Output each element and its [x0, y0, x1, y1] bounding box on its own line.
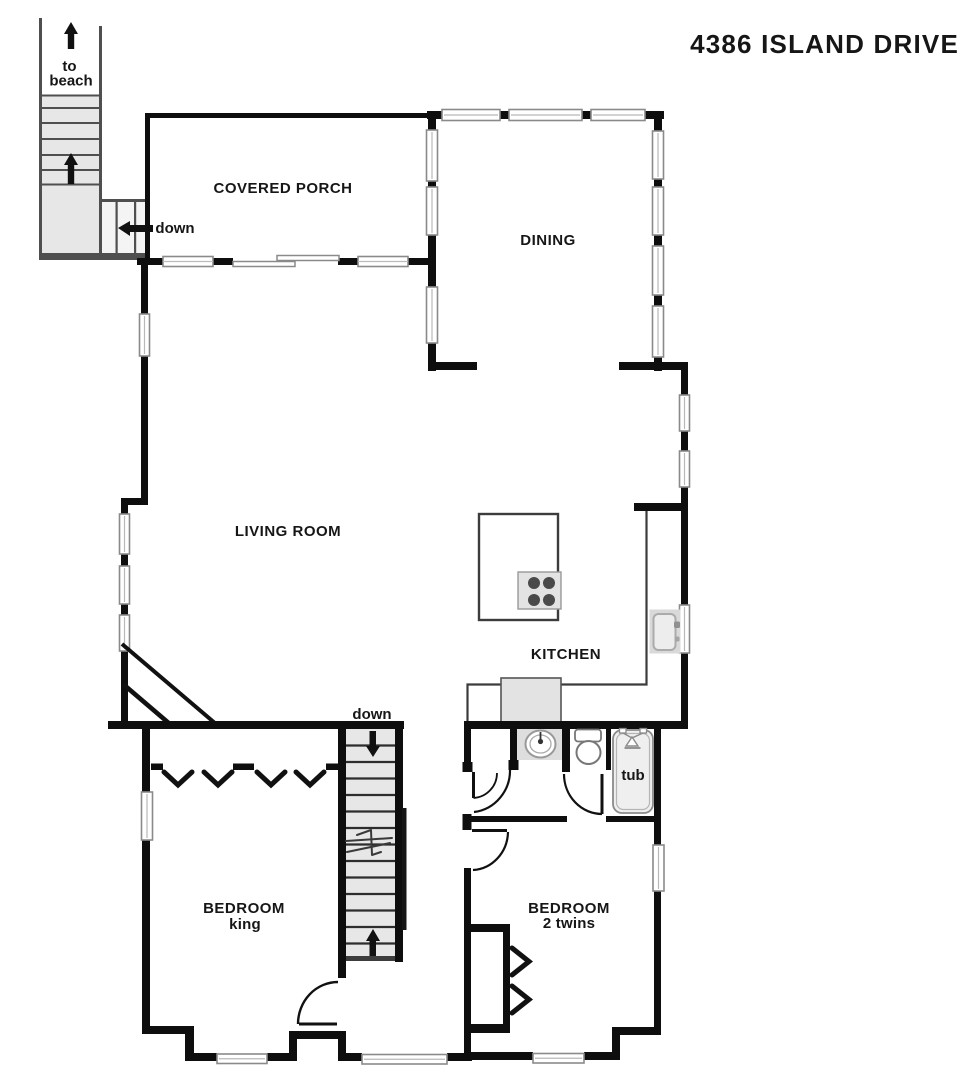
svg-text:KITCHEN: KITCHEN	[531, 646, 601, 663]
svg-text:4386 ISLAND DRIVE: 4386 ISLAND DRIVE	[690, 29, 959, 59]
svg-text:down: down	[155, 220, 194, 237]
svg-text:DINING: DINING	[520, 232, 576, 249]
svg-text:BEDROOM: BEDROOM	[203, 900, 285, 917]
svg-text:tub: tub	[621, 767, 644, 784]
svg-text:beach: beach	[49, 73, 92, 90]
svg-text:COVERED PORCH: COVERED PORCH	[213, 180, 352, 197]
svg-text:LIVING ROOM: LIVING ROOM	[235, 523, 341, 540]
svg-text:2 twins: 2 twins	[543, 915, 595, 932]
svg-text:king: king	[229, 916, 261, 933]
svg-text:down: down	[352, 706, 391, 723]
